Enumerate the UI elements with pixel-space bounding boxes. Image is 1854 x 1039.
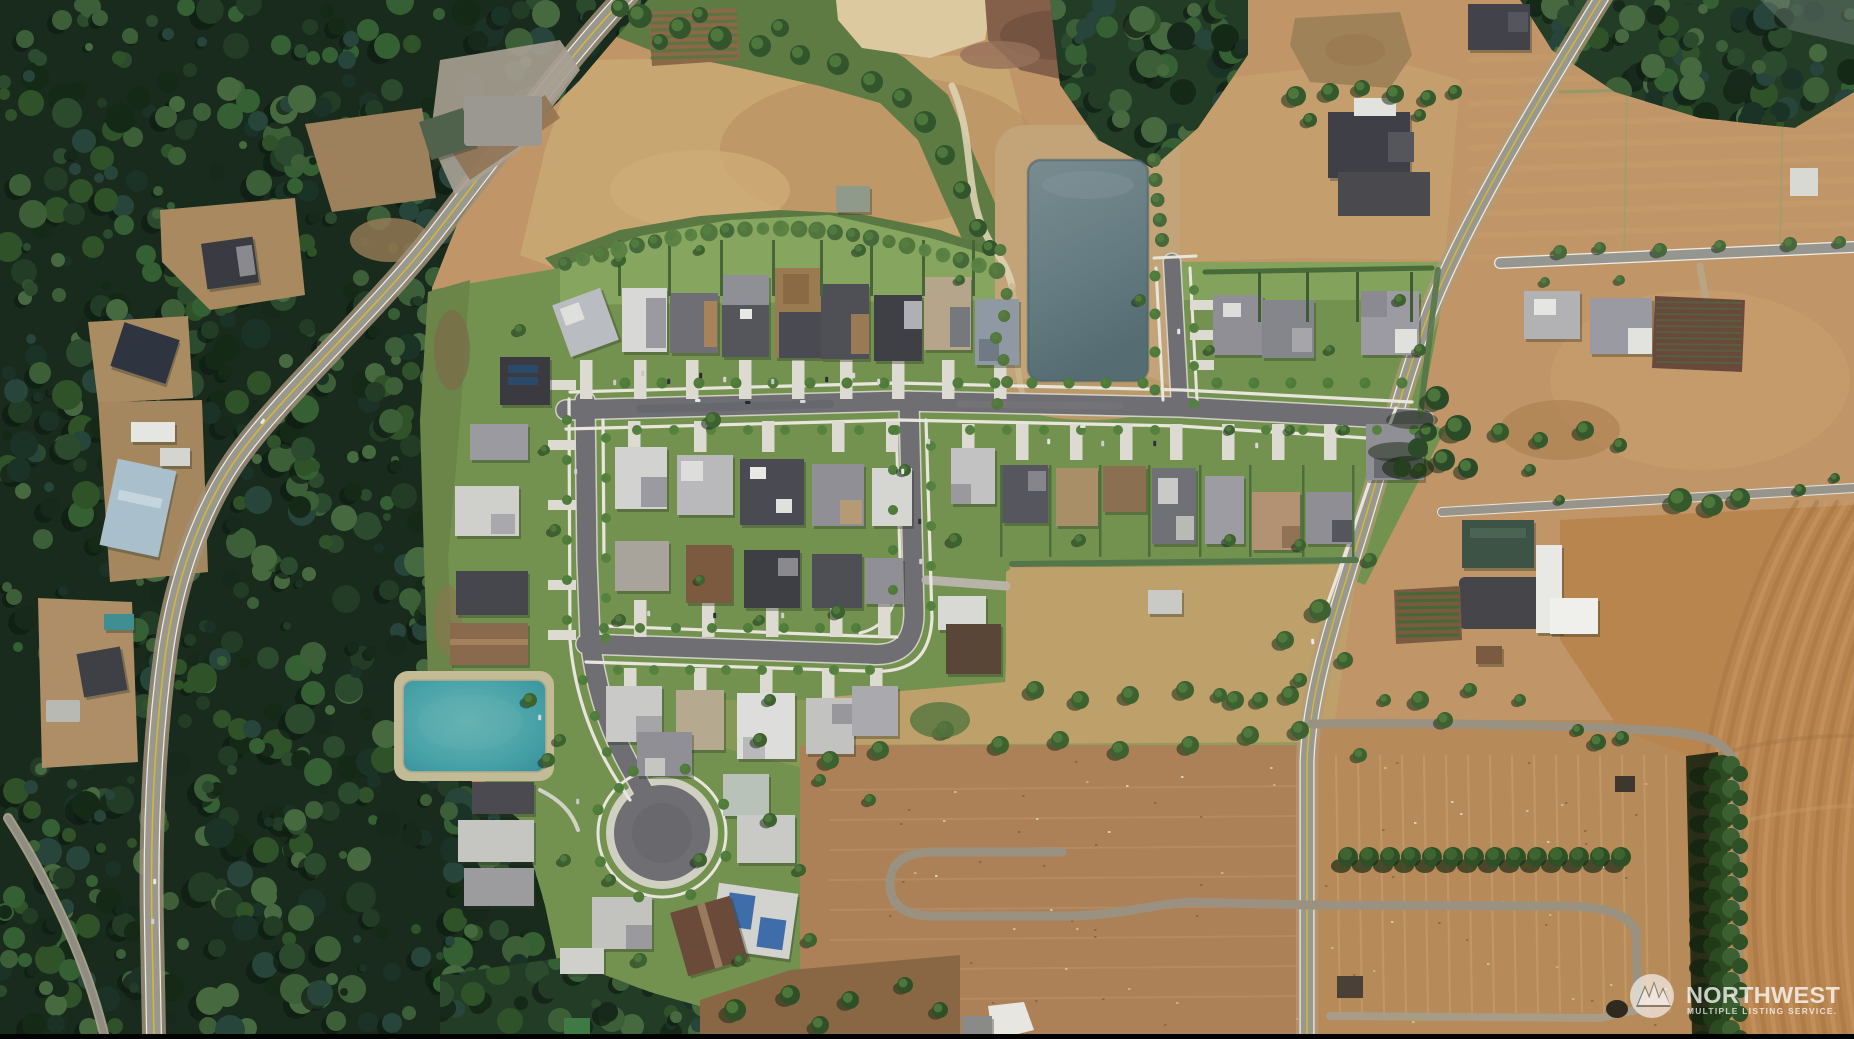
svg-text:NORTHWEST: NORTHWEST	[1686, 982, 1840, 1008]
svg-text:MULTIPLE LISTING SERVICE.: MULTIPLE LISTING SERVICE.	[1687, 1006, 1837, 1016]
